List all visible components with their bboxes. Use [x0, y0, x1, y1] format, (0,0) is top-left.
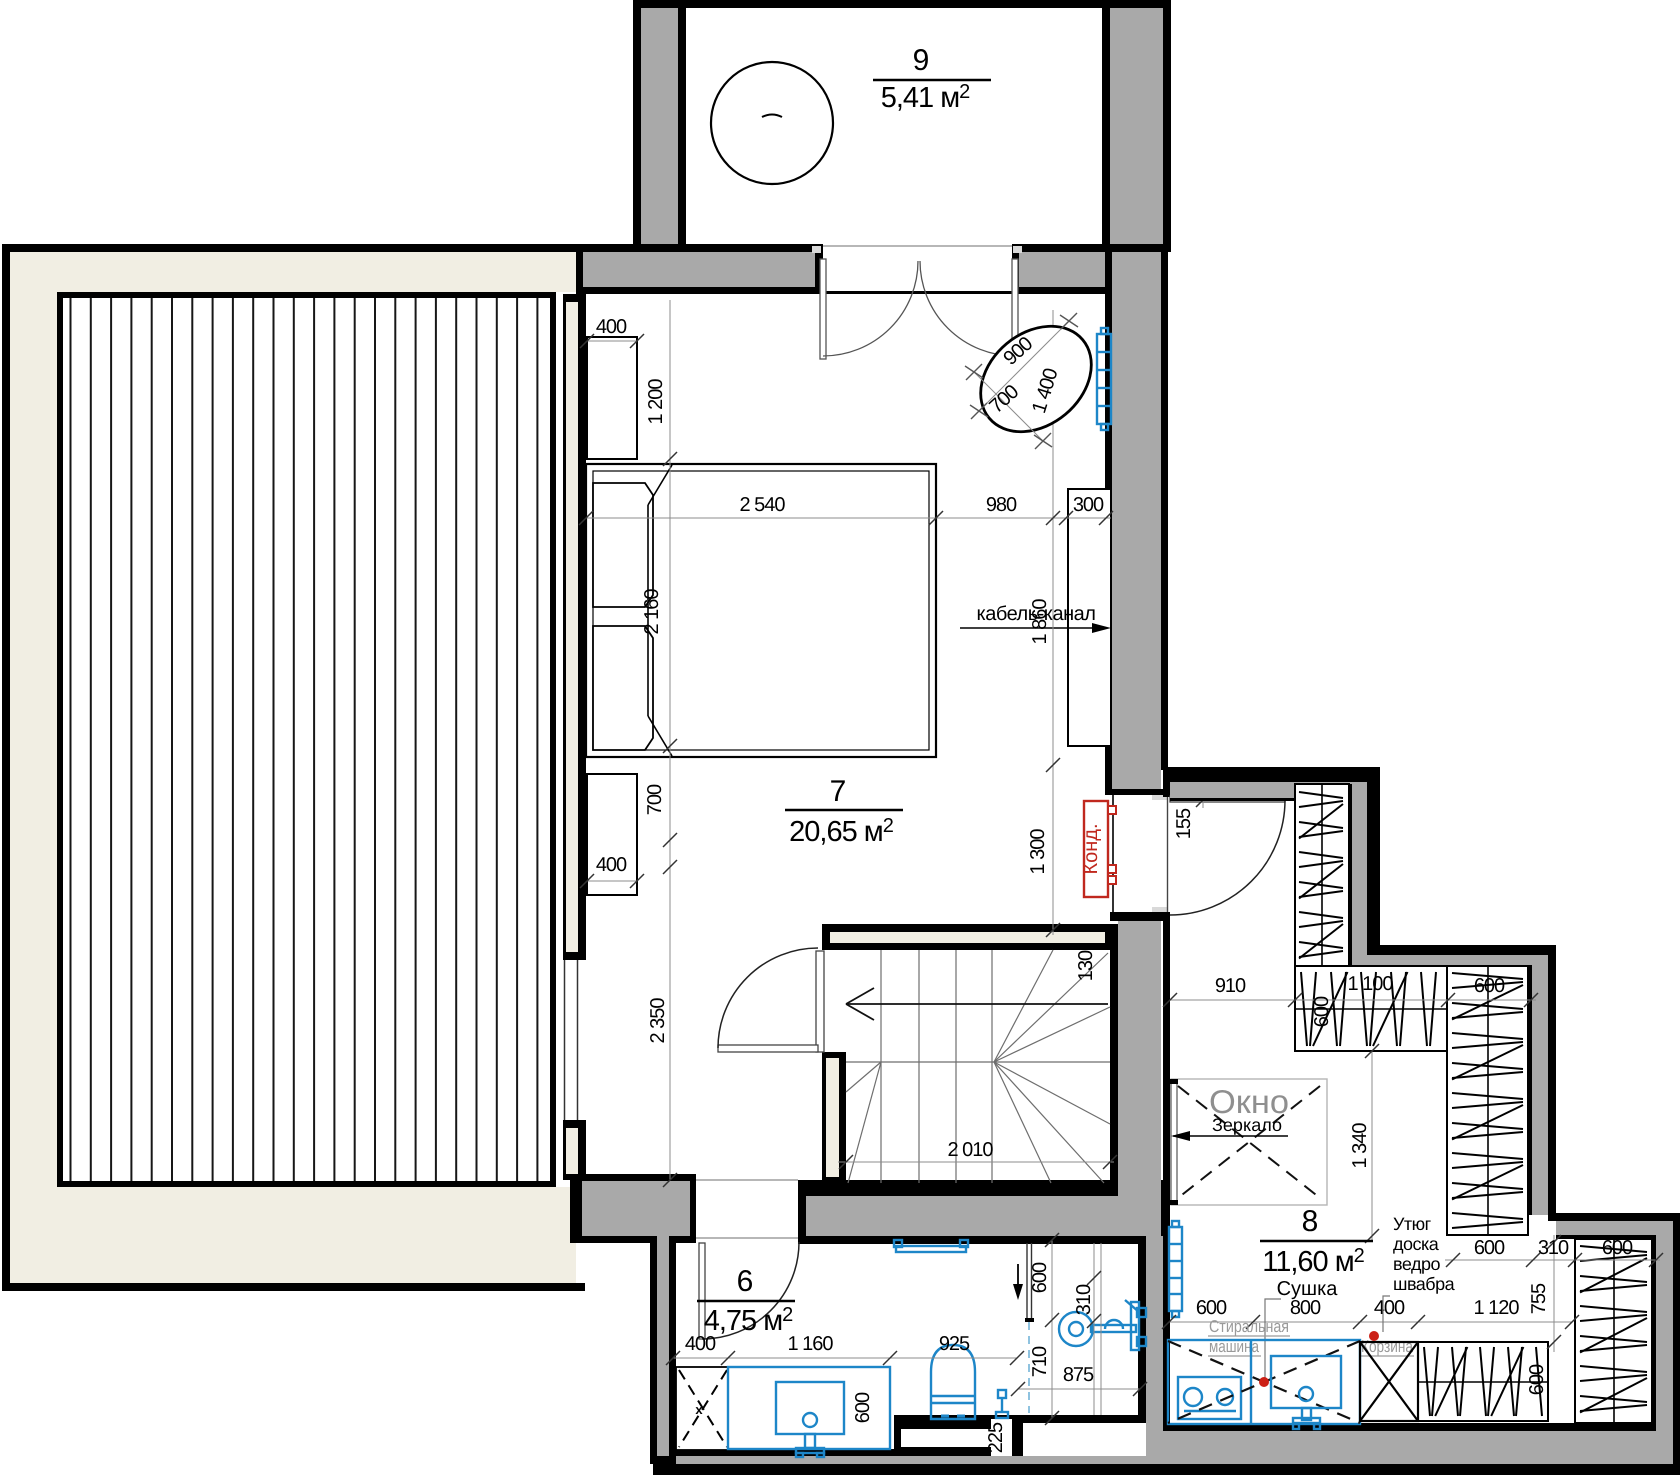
svg-text:755: 755	[1528, 1283, 1550, 1314]
svg-text:700: 700	[644, 784, 666, 815]
svg-text:1 300: 1 300	[1027, 829, 1049, 875]
svg-text:875: 875	[1063, 1364, 1094, 1386]
svg-text:600: 600	[1474, 975, 1505, 997]
svg-text:300: 300	[1073, 494, 1104, 516]
svg-text:400: 400	[596, 316, 627, 338]
svg-text:1 160: 1 160	[787, 1333, 833, 1355]
svg-text:400: 400	[1374, 1297, 1405, 1319]
svg-text:600: 600	[852, 1392, 874, 1423]
svg-text:x: x	[695, 1402, 703, 1417]
svg-text:2 010: 2 010	[947, 1139, 993, 1161]
svg-text:Зеркало: Зеркало	[1212, 1115, 1282, 1135]
svg-text:980: 980	[986, 494, 1017, 516]
svg-text:6: 6	[737, 1265, 754, 1298]
svg-text:600: 600	[1196, 1297, 1227, 1319]
svg-text:1 860: 1 860	[1029, 599, 1051, 645]
svg-text:2 350: 2 350	[647, 998, 669, 1044]
svg-text:310: 310	[1073, 1284, 1095, 1315]
svg-text:Сушка: Сушка	[1277, 1278, 1339, 1300]
svg-text:600: 600	[1029, 1262, 1051, 1293]
svg-text:ведро: ведро	[1393, 1254, 1440, 1274]
svg-text:Конд.: Конд.	[1080, 823, 1102, 874]
svg-text:20,65 м2: 20,65 м2	[789, 815, 894, 848]
svg-text:2 540: 2 540	[739, 494, 785, 516]
svg-text:400: 400	[596, 854, 627, 876]
svg-text:710: 710	[1029, 1346, 1051, 1377]
svg-text:600: 600	[1602, 1237, 1633, 1259]
svg-text:910: 910	[1215, 975, 1246, 997]
svg-text:1 340: 1 340	[1349, 1123, 1371, 1169]
svg-text:швабра: швабра	[1393, 1274, 1456, 1294]
svg-text:4,75 м2: 4,75 м2	[704, 1304, 793, 1337]
svg-text:Стиральная: Стиральная	[1209, 1317, 1289, 1336]
svg-text:310: 310	[1538, 1237, 1569, 1259]
svg-text:600: 600	[1474, 1237, 1505, 1259]
svg-text:9: 9	[913, 44, 930, 77]
svg-text:1 200: 1 200	[645, 379, 667, 425]
svg-text:225: 225	[985, 1422, 1007, 1453]
svg-text:600: 600	[1311, 996, 1333, 1027]
svg-text:155: 155	[1173, 808, 1195, 839]
svg-text:400: 400	[685, 1333, 716, 1355]
svg-text:1 120: 1 120	[1473, 1297, 1519, 1319]
svg-text:925: 925	[939, 1333, 970, 1355]
svg-text:800: 800	[1290, 1297, 1321, 1319]
svg-text:5,41 м2: 5,41 м2	[881, 81, 970, 114]
svg-text:доска: доска	[1393, 1234, 1440, 1254]
svg-text:7: 7	[830, 775, 847, 808]
svg-text:2 160: 2 160	[641, 589, 663, 635]
svg-text:Утюг: Утюг	[1393, 1214, 1432, 1234]
svg-text:8: 8	[1302, 1205, 1319, 1238]
svg-text:1 100: 1 100	[1347, 973, 1393, 995]
svg-text:130: 130	[1075, 950, 1097, 981]
svg-text:11,60 м2: 11,60 м2	[1262, 1245, 1364, 1278]
svg-text:600: 600	[1526, 1364, 1548, 1395]
